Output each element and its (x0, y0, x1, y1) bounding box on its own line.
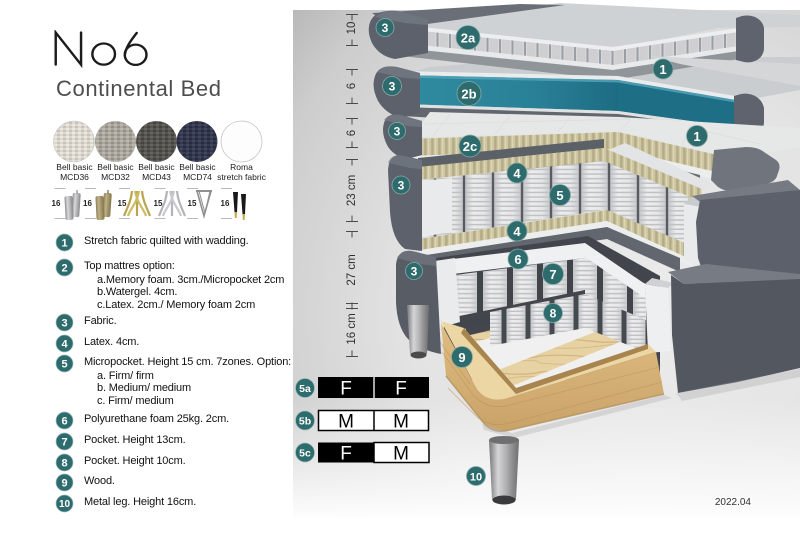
svg-text:6: 6 (346, 130, 358, 136)
svg-text:3: 3 (411, 265, 418, 279)
svg-text:3: 3 (389, 80, 396, 94)
svg-text:16 cm: 16 cm (346, 313, 358, 344)
svg-text:F: F (340, 379, 352, 400)
svg-text:5c: 5c (299, 448, 311, 460)
svg-text:10: 10 (346, 22, 358, 35)
svg-text:10: 10 (470, 472, 482, 484)
svg-text:7: 7 (549, 267, 556, 282)
svg-text:M: M (338, 412, 354, 433)
svg-text:M: M (393, 412, 409, 433)
svg-text:3: 3 (398, 179, 405, 193)
svg-text:1: 1 (693, 129, 700, 144)
svg-text:1: 1 (659, 62, 666, 77)
svg-text:2022.04: 2022.04 (715, 497, 752, 508)
svg-text:23 cm: 23 cm (346, 175, 358, 206)
svg-text:3: 3 (394, 125, 401, 139)
svg-text:8: 8 (550, 307, 557, 321)
svg-text:2c: 2c (463, 139, 477, 154)
svg-text:6: 6 (346, 83, 358, 89)
svg-text:2a: 2a (461, 31, 476, 46)
svg-text:6: 6 (514, 252, 521, 267)
svg-text:2b: 2b (461, 87, 476, 102)
svg-text:F: F (395, 379, 407, 400)
svg-text:4: 4 (513, 166, 521, 181)
svg-text:5: 5 (556, 188, 563, 203)
svg-text:5b: 5b (299, 416, 311, 428)
svg-text:9: 9 (458, 350, 465, 365)
svg-text:M: M (393, 444, 409, 465)
svg-text:F: F (340, 444, 352, 465)
svg-text:3: 3 (382, 21, 389, 35)
svg-text:5a: 5a (299, 383, 311, 395)
svg-text:4: 4 (513, 224, 521, 239)
svg-text:27 cm: 27 cm (346, 254, 358, 285)
